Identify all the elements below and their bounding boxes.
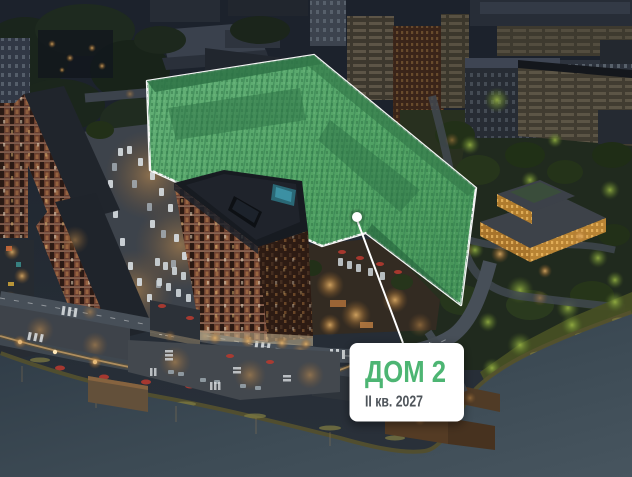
svg-text:ДОМ 2: ДОМ 2 — [365, 354, 446, 389]
svg-text:II кв. 2027: II кв. 2027 — [365, 394, 423, 411]
